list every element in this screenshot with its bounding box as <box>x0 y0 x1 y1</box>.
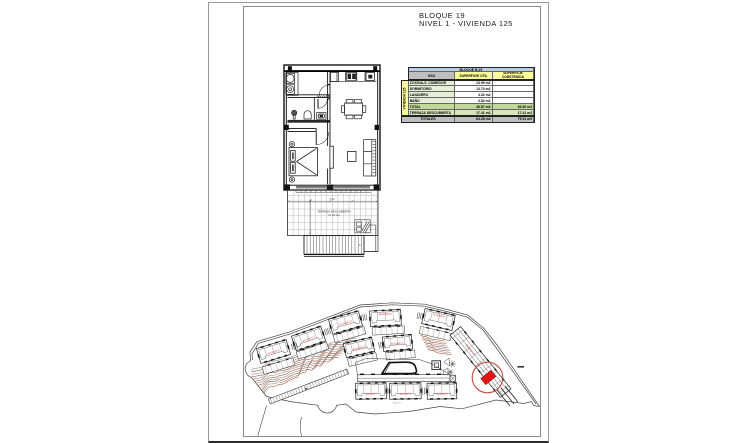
svg-text:BLOQUE 8: BLOQUE 8 <box>400 393 412 395</box>
svg-text:8.90: 8.90 <box>330 198 335 201</box>
svg-text:17.41 m2: 17.41 m2 <box>328 213 340 217</box>
svg-text:BLOQUE 9: BLOQUE 9 <box>436 393 448 395</box>
svg-text:CALLE 1: CALLE 1 <box>393 402 403 405</box>
svg-text:4: 4 <box>359 243 361 247</box>
svg-text:BLOQUE 7: BLOQUE 7 <box>365 393 377 395</box>
